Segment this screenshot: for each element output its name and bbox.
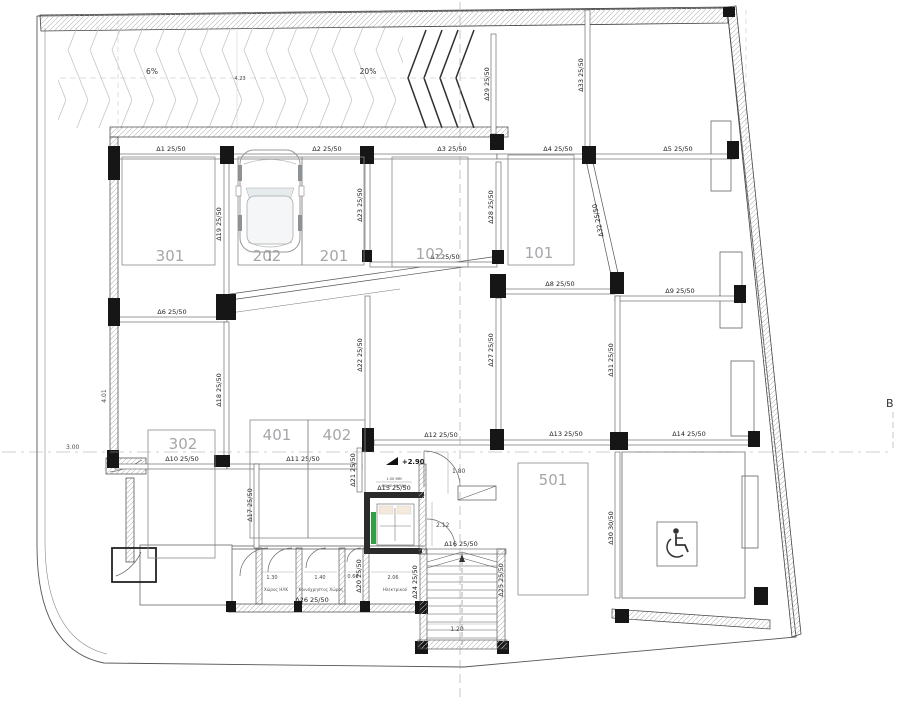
beam-label: Δ29 25/50 bbox=[483, 67, 491, 101]
beam bbox=[227, 464, 362, 469]
beam bbox=[497, 440, 620, 445]
wall-bottom-rooms bbox=[228, 604, 426, 612]
elevator-door-green bbox=[371, 512, 376, 544]
beam bbox=[615, 296, 737, 301]
beam-label: Δ27 25/50 bbox=[487, 333, 495, 367]
parking-space-number: 101 bbox=[525, 244, 554, 262]
beam-label: Δ30 30/50 bbox=[607, 511, 615, 545]
beam bbox=[357, 448, 362, 492]
beam bbox=[620, 440, 757, 445]
wheelchair-icon-wheel bbox=[667, 539, 683, 557]
beam-label: Δ16 25/50 bbox=[444, 540, 478, 548]
section-label: B bbox=[886, 397, 894, 410]
beam-label: Δ14 25/50 bbox=[672, 430, 706, 438]
service-rooms: 1.30 1.40 0.66 2.06 Χώρος ΗΛΚ Κοινόχρηστ… bbox=[240, 548, 418, 592]
car-mirror bbox=[236, 186, 241, 196]
wall-left-lower bbox=[126, 478, 134, 562]
elevator-wall bbox=[364, 492, 424, 498]
beam-label: Δ19 25/50 bbox=[215, 207, 223, 241]
beam bbox=[224, 322, 229, 464]
elevator-car-detail bbox=[379, 506, 393, 514]
dim-text: 2.12 bbox=[436, 522, 450, 529]
elevator-spec: 1.50 ΜΜ bbox=[386, 477, 401, 481]
wall-room-divider bbox=[363, 548, 369, 604]
car-hood-line bbox=[244, 160, 296, 165]
beam-label: Δ24 25/50 bbox=[411, 565, 419, 599]
beam bbox=[365, 296, 370, 440]
dim-text: 3.00 bbox=[66, 444, 80, 451]
beam-label: Δ10 25/50 bbox=[165, 455, 199, 463]
wall-bottom-right bbox=[612, 609, 770, 629]
parking-space-number: 102 bbox=[416, 245, 445, 263]
ramp-width-dim: 4.23 bbox=[234, 76, 245, 82]
elevator-wall bbox=[364, 498, 370, 550]
beam-label: Δ2 25/50 bbox=[312, 145, 341, 153]
beam bbox=[374, 440, 497, 445]
floor-plan-drawing: 6% 20% 4.23 Δ1 25/50 Δ2 25/50 bbox=[0, 0, 900, 704]
dim-text: 1.40 bbox=[314, 575, 325, 581]
beam-label: Δ28 25/50 bbox=[487, 190, 495, 224]
beam bbox=[585, 10, 590, 154]
elevator-core: Δ15 25/50 1.50 ΜΜ ΘΕ ΔΕ 90/75Α +2.90 1.8… bbox=[364, 451, 496, 554]
beam-grid-horizontal: Δ1 25/50 Δ2 25/50 Δ3 25/50 Δ4 25/50 Δ5 2… bbox=[115, 145, 757, 604]
wall-top bbox=[110, 127, 508, 137]
floor-plan: 6% 20% 4.23 Δ1 25/50 Δ2 25/50 bbox=[0, 0, 900, 704]
beam bbox=[615, 296, 620, 436]
wheelchair-icon-body bbox=[676, 534, 688, 552]
level-mark-flag bbox=[386, 457, 398, 465]
beam-label: Δ13 25/50 bbox=[549, 430, 583, 438]
elevator-wall bbox=[364, 548, 422, 554]
elevator-spec: ΘΕ ΔΕ 90/75Α bbox=[382, 484, 407, 488]
ramp-edge bbox=[230, 289, 400, 313]
dim-text: 1.20 bbox=[450, 626, 464, 633]
beam bbox=[497, 289, 615, 294]
accessible-space bbox=[622, 452, 745, 598]
parking-space-number: 301 bbox=[156, 247, 185, 265]
car-mirror bbox=[299, 186, 304, 196]
door-arc bbox=[306, 548, 326, 568]
beam-label: Δ9 25/50 bbox=[665, 287, 694, 295]
ramp-steep-chevrons bbox=[408, 30, 474, 128]
beam-label: Δ31 25/50 bbox=[607, 343, 615, 377]
parking-space-number: 401 bbox=[263, 426, 292, 444]
stair-wall bbox=[420, 549, 427, 648]
beam bbox=[365, 162, 370, 252]
beam-label: Δ18 25/50 bbox=[215, 373, 223, 407]
beam bbox=[615, 452, 620, 598]
car-roof bbox=[247, 196, 293, 244]
wheelchair-icon-head bbox=[673, 528, 679, 534]
ramp-slope-steep: 20% bbox=[360, 67, 377, 76]
wall-room-divider bbox=[339, 548, 345, 604]
level-mark: +2.90 bbox=[402, 458, 425, 466]
parking-space-number: 501 bbox=[539, 471, 568, 489]
parking-space-number: 302 bbox=[169, 435, 198, 453]
beam bbox=[491, 34, 496, 134]
dim-text: 0.66 bbox=[347, 574, 358, 580]
dim-text: 1.30 bbox=[266, 575, 277, 581]
beam-label: Δ22 25/50 bbox=[356, 338, 364, 372]
beam bbox=[585, 154, 735, 159]
elevator-car-detail bbox=[397, 506, 411, 514]
beam-label: Δ6 25/50 bbox=[157, 308, 186, 316]
beam bbox=[115, 464, 227, 469]
beam-label: Δ21 25/50 bbox=[349, 453, 357, 487]
beam-label: Δ8 25/50 bbox=[545, 280, 574, 288]
beam-label: Δ33 25/50 bbox=[577, 58, 585, 92]
beam-label: Δ23 25/50 bbox=[356, 188, 364, 222]
door-arc bbox=[268, 548, 292, 572]
room-label: Ηλεκτρικού bbox=[383, 587, 408, 592]
parking-space-number: 202 bbox=[253, 247, 282, 265]
car-axis-dot bbox=[269, 259, 271, 261]
room-label: Κοινόχρηστος Χώρος bbox=[299, 587, 344, 592]
dim-text: 1.80 bbox=[452, 468, 466, 475]
stair-wall bbox=[418, 640, 507, 649]
beam-label: Δ4 25/50 bbox=[543, 145, 572, 153]
beam bbox=[370, 154, 497, 159]
top-retaining-wall bbox=[40, 7, 728, 31]
beam bbox=[496, 298, 501, 440]
beam-label: Δ12 25/50 bbox=[424, 431, 458, 439]
room-outline-bottom-left bbox=[140, 545, 232, 605]
stairwell: 1.20 bbox=[418, 549, 507, 649]
parking-space-number: 402 bbox=[323, 426, 352, 444]
beam bbox=[254, 464, 259, 548]
beam bbox=[115, 154, 227, 159]
beam bbox=[115, 317, 227, 322]
parking-space-number: 201 bbox=[320, 247, 349, 265]
beam-label: Δ1 25/50 bbox=[156, 145, 185, 153]
stair-wall bbox=[497, 549, 505, 648]
wheelchair-icon bbox=[657, 522, 697, 566]
beam bbox=[496, 162, 501, 252]
dim-text: 4.01 bbox=[101, 389, 108, 403]
elevator-wall-right bbox=[419, 464, 426, 554]
beam-label: Δ11 25/50 bbox=[286, 455, 320, 463]
beam-label: Δ5 25/50 bbox=[663, 145, 692, 153]
room-label: Χώρος ΗΛΚ bbox=[264, 587, 288, 592]
car-top-view bbox=[236, 150, 304, 261]
ramp-slope-gentle: 6% bbox=[146, 67, 158, 76]
dim-text: 2.06 bbox=[387, 575, 398, 581]
beam bbox=[224, 162, 229, 295]
beam-label: Δ3 25/50 bbox=[437, 145, 466, 153]
wall-room-divider bbox=[256, 548, 262, 604]
